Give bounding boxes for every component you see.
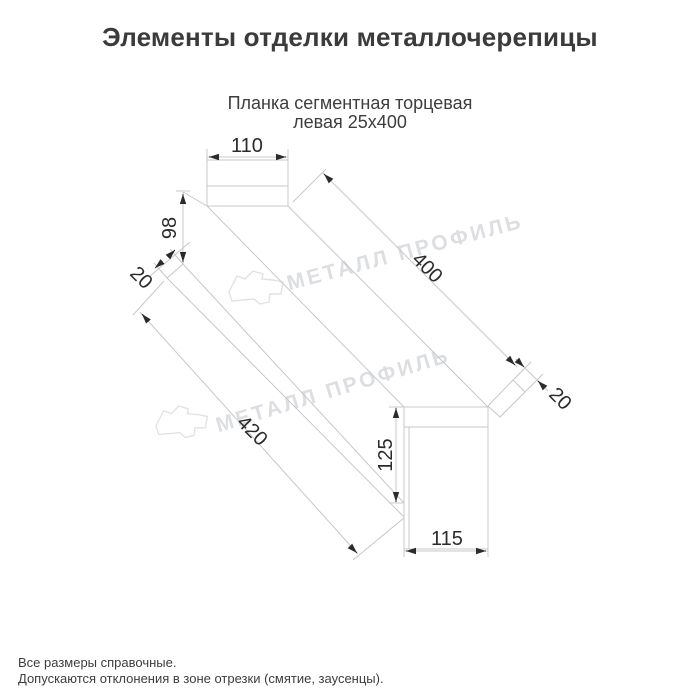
watermark-text-top: МЕТАЛЛ ПРОФИЛЬ	[284, 210, 525, 295]
footnote-deviations: Допускаются отклонения в зоне отрезки (с…	[18, 671, 578, 687]
part-outline	[167, 160, 525, 549]
dim-far-hem: 20	[544, 383, 575, 414]
dim-near-end-height: 98	[159, 217, 181, 239]
dimension-lines	[133, 149, 548, 560]
watermark-logo-bottom	[156, 406, 207, 437]
dim-top-flange-width: 110	[231, 135, 263, 157]
dim-far-end-width: 115	[431, 528, 463, 550]
footnote-reference-sizes: Все размеры справочные.	[18, 655, 578, 671]
footnotes: Все размеры справочные. Допускаются откл…	[18, 655, 578, 686]
technical-drawing: МЕТАЛЛ ПРОФИЛЬ МЕТАЛЛ ПРОФИЛЬ	[0, 0, 700, 700]
dimension-arrows	[142, 157, 543, 553]
dim-far-end-height: 125	[375, 438, 397, 471]
product-drawing-page: Элементы отделки металлочерепицы Планка …	[0, 0, 700, 700]
dim-near-hem: 20	[125, 262, 156, 293]
